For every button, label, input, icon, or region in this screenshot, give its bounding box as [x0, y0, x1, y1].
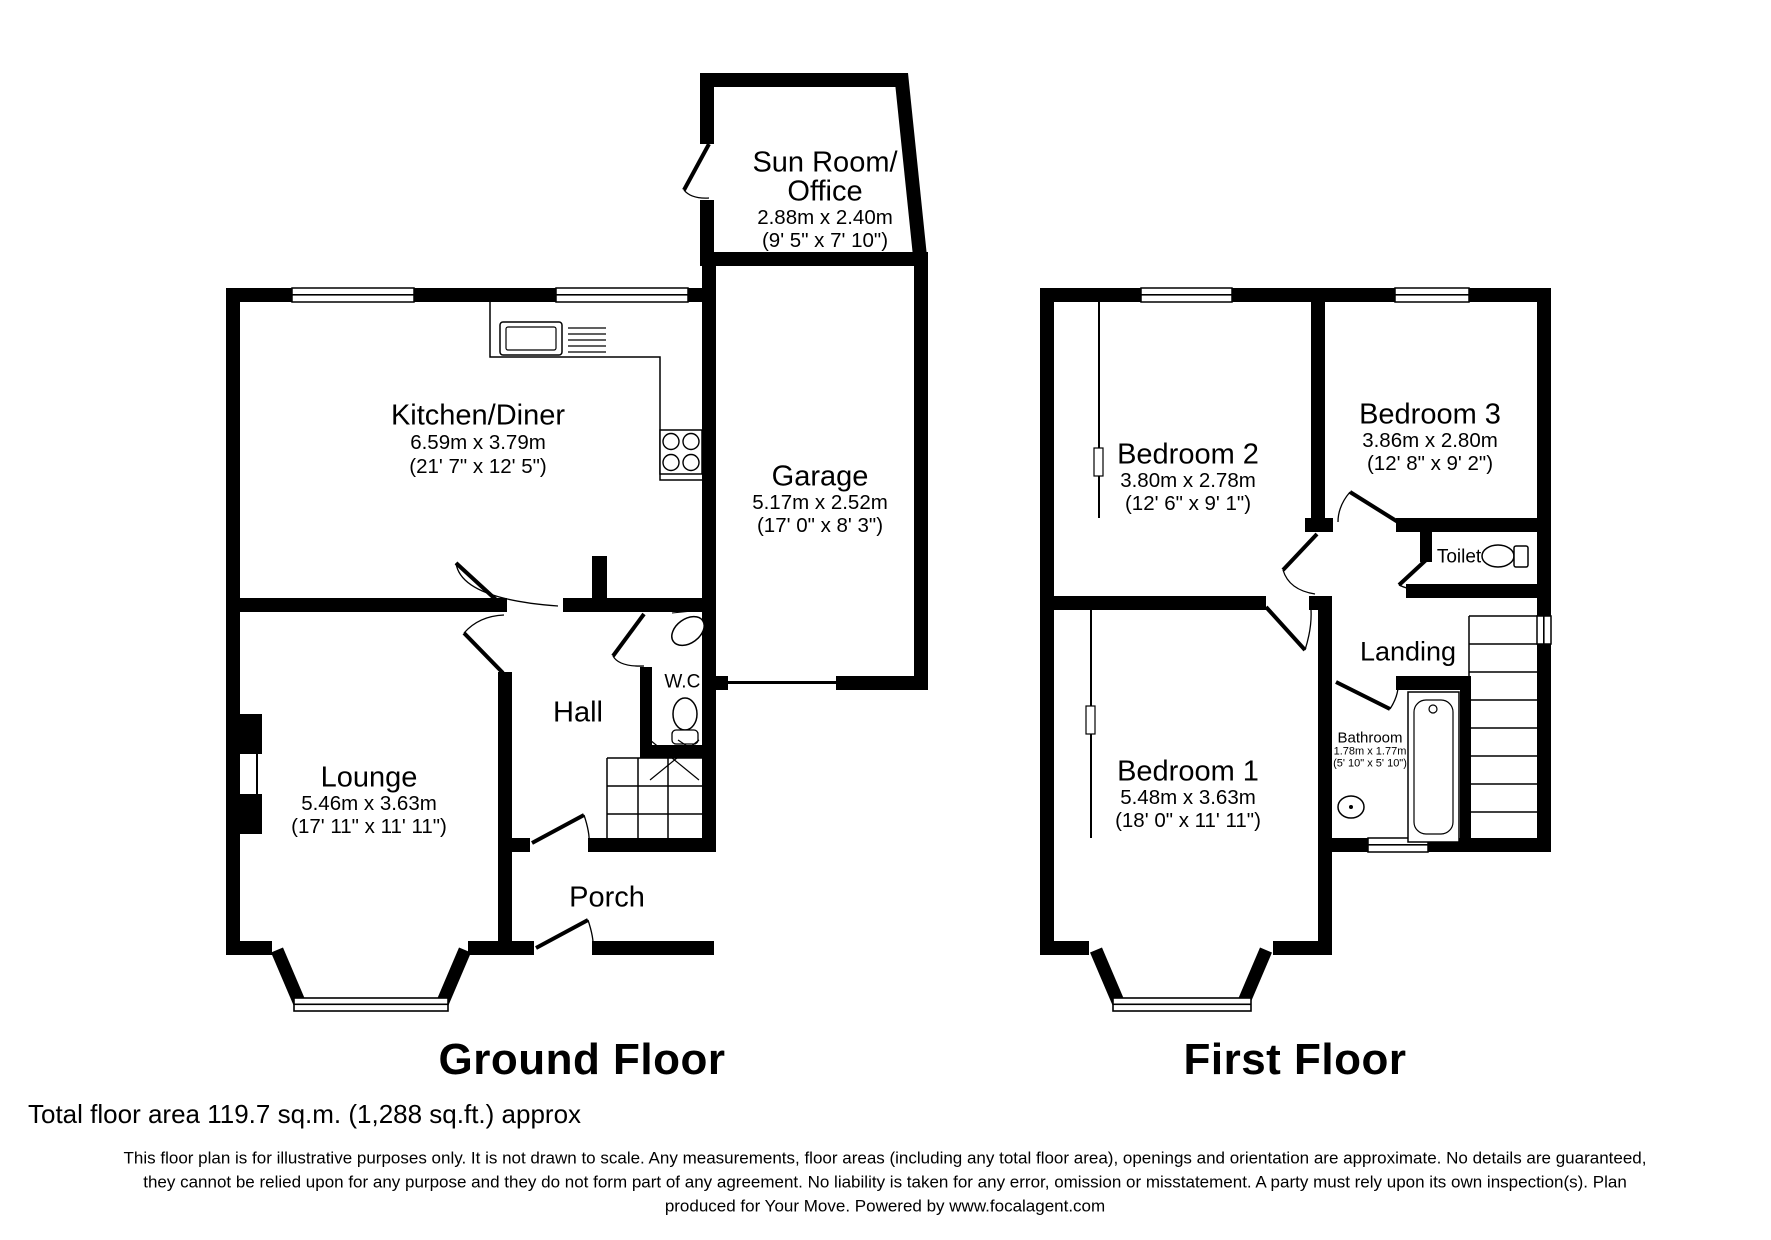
room-dims-bathroom-imperial: (5' 10" x 5' 10") [1333, 759, 1407, 770]
room-label-bathroom: Bathroom [1337, 731, 1402, 746]
room-dims-sun-room-metric: 2.88m x 2.40m [757, 208, 893, 229]
room-label-bedroom-3: Bedroom 3 [1359, 401, 1501, 430]
disclaimer-line-2: they cannot be relied upon for any purpo… [143, 1174, 1627, 1191]
total-floor-area-text: Total floor area 119.7 sq.m. (1,288 sq.f… [28, 1099, 581, 1130]
room-label-wc: W.C. [664, 673, 705, 692]
bathtub-icon [1408, 692, 1459, 842]
first-feature-rects [1086, 448, 1103, 734]
bathroom-sink-icon [1338, 796, 1364, 818]
room-dims-bedroom-2-metric: 3.80m x 2.78m [1120, 471, 1256, 492]
first-floor-title: First Floor [1183, 1038, 1406, 1082]
room-dims-bedroom-1-metric: 5.48m x 3.63m [1120, 788, 1256, 809]
room-label-bedroom-1: Bedroom 1 [1117, 758, 1259, 787]
room-label-sun-room-line2: Office [787, 178, 862, 207]
room-dims-kitchen-imperial: (21' 7" x 12' 5") [409, 457, 546, 478]
floorplan-page: Sun Room/ Office 2.88m x 2.40m (9' 5" x … [0, 0, 1771, 1240]
floor-plan-canvas [0, 0, 1771, 1240]
hob-icon [660, 430, 702, 474]
lounge-bay-window [277, 950, 465, 1011]
room-dims-bedroom-2-imperial: (12' 6" x 9' 1") [1125, 494, 1251, 515]
kitchen-sink-icon [500, 322, 606, 355]
disclaimer-line-3: produced for Your Move. Powered by www.f… [665, 1198, 1105, 1215]
wc-toilet-icon [672, 698, 698, 751]
first-walls [1040, 288, 1551, 955]
room-label-garage: Garage [772, 463, 869, 492]
disclaimer-line-1: This floor plan is for illustrative purp… [124, 1150, 1647, 1167]
room-dims-garage-imperial: (17' 0" x 8' 3") [757, 516, 883, 537]
ground-doors [456, 144, 709, 948]
room-label-lounge: Lounge [321, 764, 418, 793]
room-label-hall: Hall [553, 699, 603, 728]
room-dims-sun-room-imperial: (9' 5" x 7' 10") [762, 231, 888, 252]
room-dims-bedroom-1-imperial: (18' 0" x 11' 11") [1115, 811, 1261, 832]
room-dims-bedroom-3-imperial: (12' 8" x 9' 2") [1367, 454, 1493, 475]
room-label-porch: Porch [569, 884, 645, 913]
room-label-bedroom-2: Bedroom 2 [1117, 441, 1259, 470]
bedroom1-bay-window [1096, 950, 1266, 1011]
room-dims-bathroom-metric: 1.78m x 1.77m [1334, 747, 1407, 758]
room-dims-lounge-metric: 5.46m x 3.63m [301, 794, 437, 815]
room-dims-kitchen-metric: 6.59m x 3.79m [410, 433, 546, 454]
room-label-toilet: Toilet [1437, 548, 1481, 567]
room-label-kitchen-diner: Kitchen/Diner [391, 402, 565, 431]
room-dims-bedroom-3-metric: 3.86m x 2.80m [1362, 431, 1498, 452]
first-floor-plan [1040, 288, 1551, 1011]
room-dims-garage-metric: 5.17m x 2.52m [752, 493, 888, 514]
first-stairs-icon [1469, 616, 1537, 838]
toilet-icon [1482, 545, 1528, 567]
room-dims-lounge-imperial: (17' 11" x 11' 11") [291, 817, 447, 838]
room-label-landing: Landing [1360, 639, 1456, 666]
ground-floor-title: Ground Floor [438, 1038, 725, 1082]
room-label-sun-room-line1: Sun Room/ [752, 149, 897, 178]
